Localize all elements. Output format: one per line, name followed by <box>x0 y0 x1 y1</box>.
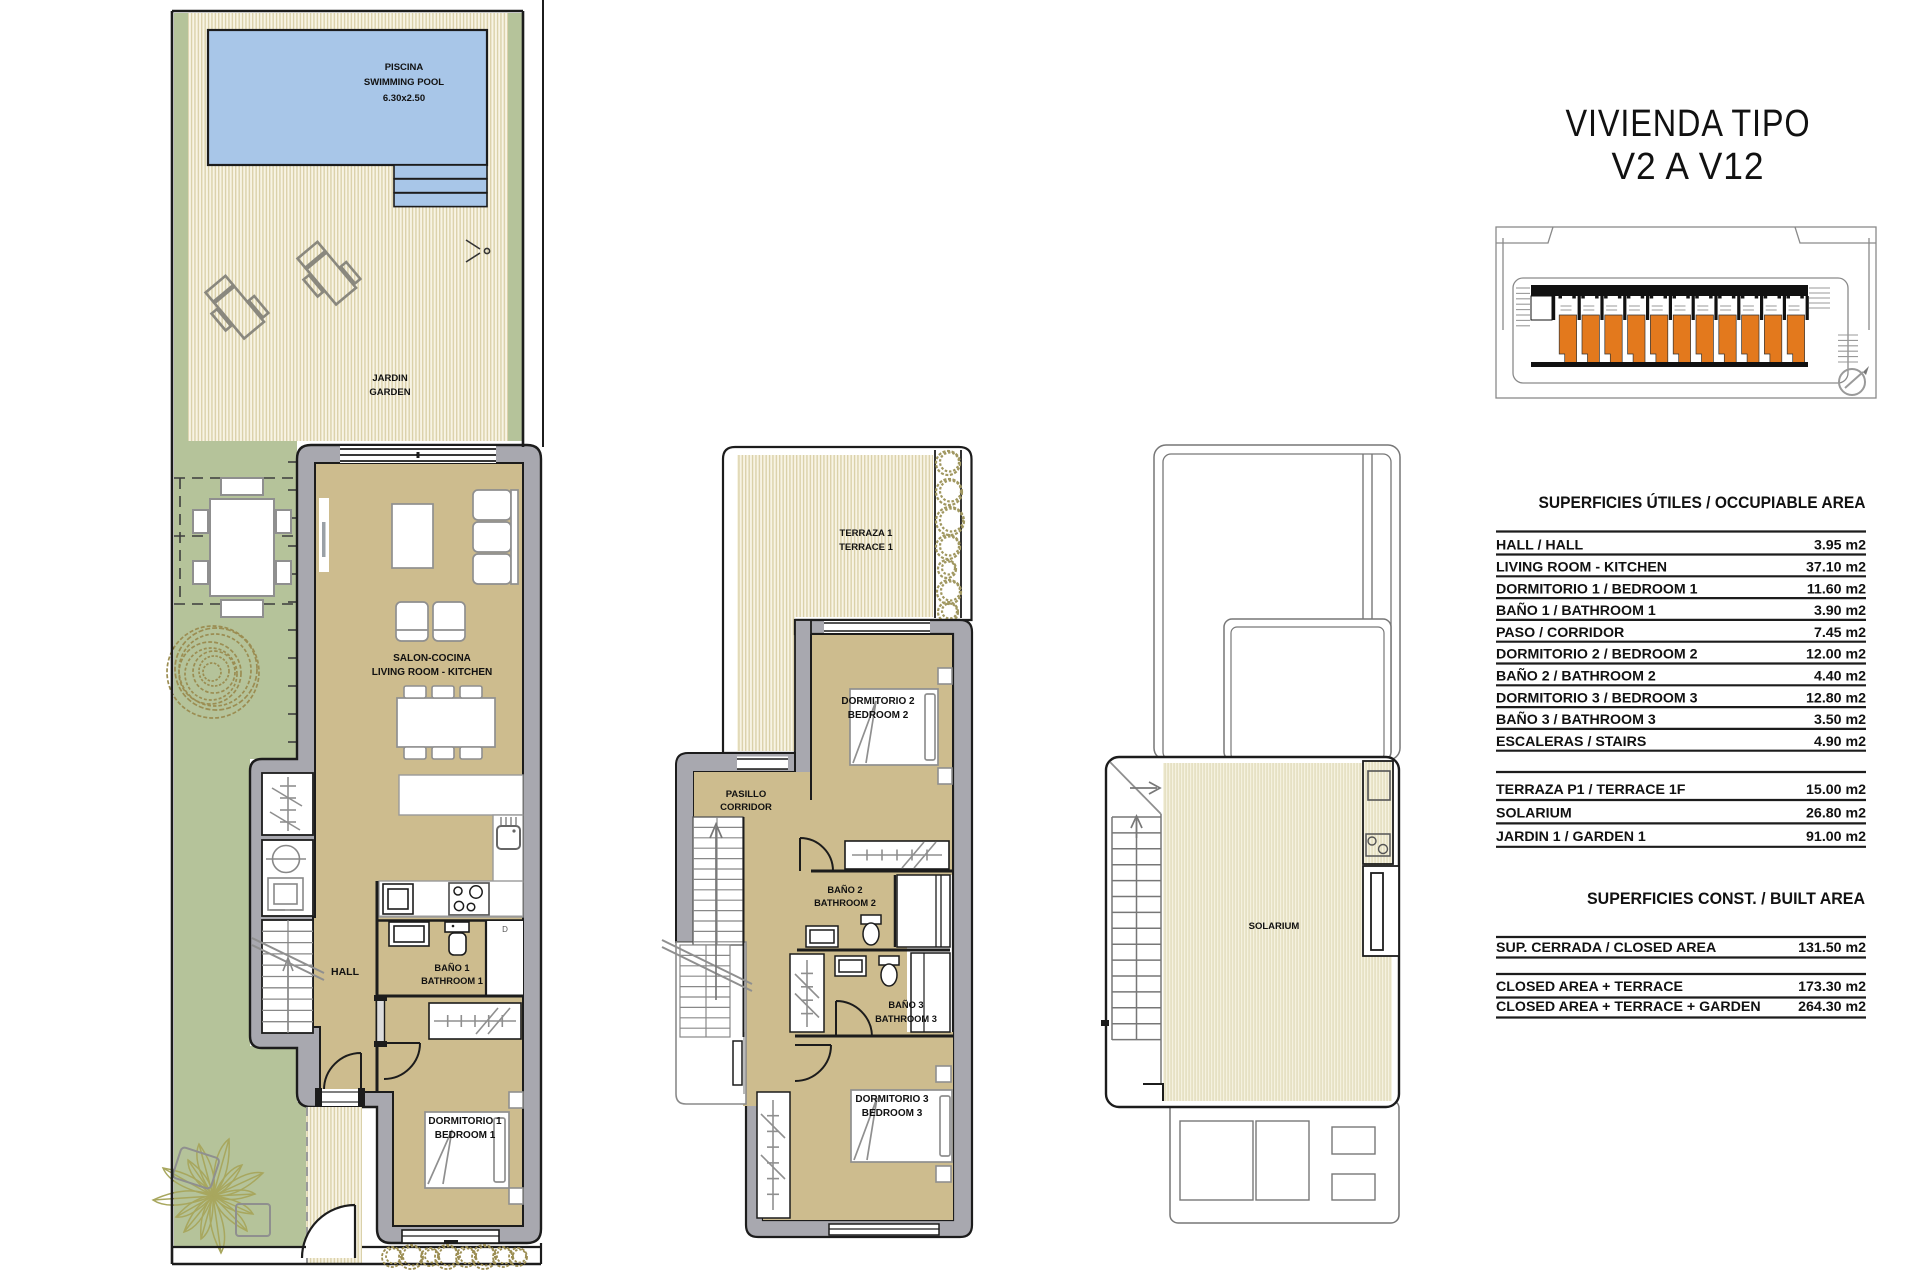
svg-text:12.80 m2: 12.80 m2 <box>1806 690 1866 706</box>
svg-text:BAÑO 2 / BATHROOM 2: BAÑO 2 / BATHROOM 2 <box>1496 667 1656 685</box>
svg-text:37.10 m2: 37.10 m2 <box>1806 560 1866 576</box>
svg-text:DORMITORIO 2: DORMITORIO 2 <box>841 696 915 707</box>
svg-text:BEDROOM 2: BEDROOM 2 <box>848 710 909 721</box>
svg-text:DORMITORIO 2 / BEDROOM 2: DORMITORIO 2 / BEDROOM 2 <box>1496 647 1698 663</box>
svg-text:SOLARIUM: SOLARIUM <box>1249 921 1300 932</box>
svg-text:SOLARIUM: SOLARIUM <box>1496 805 1572 821</box>
svg-text:V2 A V12: V2 A V12 <box>1612 146 1765 188</box>
svg-text:D: D <box>502 925 508 934</box>
svg-text:3.95 m2: 3.95 m2 <box>1814 538 1866 554</box>
svg-text:SUPERFICIES ÚTILES / OCCUPIABL: SUPERFICIES ÚTILES / OCCUPIABLE AREA <box>1539 493 1866 512</box>
svg-text:PASO / CORRIDOR: PASO / CORRIDOR <box>1496 625 1624 641</box>
svg-text:12.00 m2: 12.00 m2 <box>1806 647 1866 663</box>
svg-text:SUP. CERRADA / CLOSED AREA: SUP. CERRADA / CLOSED AREA <box>1496 940 1716 956</box>
svg-text:BATHROOM 3: BATHROOM 3 <box>875 1014 937 1024</box>
svg-text:3.50 m2: 3.50 m2 <box>1814 712 1866 728</box>
svg-text:HALL: HALL <box>331 966 360 978</box>
svg-text:DORMITORIO 3: DORMITORIO 3 <box>855 1094 929 1105</box>
svg-text:264.30 m2: 264.30 m2 <box>1798 999 1866 1015</box>
svg-text:TERRAZA P1 / TERRACE 1F: TERRAZA P1 / TERRACE 1F <box>1496 782 1686 798</box>
svg-text:PASILLO: PASILLO <box>726 789 766 800</box>
svg-text:BAÑO 3 / BATHROOM 3: BAÑO 3 / BATHROOM 3 <box>1496 710 1656 728</box>
svg-text:SALON-COCINA: SALON-COCINA <box>393 653 471 664</box>
svg-text:BEDROOM 3: BEDROOM 3 <box>862 1108 923 1119</box>
svg-text:JARDIN 1 / GARDEN 1: JARDIN 1 / GARDEN 1 <box>1496 829 1646 845</box>
svg-text:GARDEN: GARDEN <box>369 387 410 398</box>
svg-text:3.90 m2: 3.90 m2 <box>1814 603 1866 619</box>
svg-text:15.00 m2: 15.00 m2 <box>1806 782 1866 798</box>
svg-text:TERRACE 1: TERRACE 1 <box>839 542 894 553</box>
svg-text:SWIMMING POOL: SWIMMING POOL <box>364 77 444 88</box>
svg-text:91.00 m2: 91.00 m2 <box>1806 829 1866 845</box>
svg-text:CORRIDOR: CORRIDOR <box>720 802 772 813</box>
svg-text:4.90 m2: 4.90 m2 <box>1814 734 1866 750</box>
svg-text:DORMITORIO 1: DORMITORIO 1 <box>428 1116 502 1127</box>
svg-text:CLOSED AREA + TERRACE: CLOSED AREA + TERRACE <box>1496 979 1683 995</box>
svg-text:BATHROOM 1: BATHROOM 1 <box>421 976 483 986</box>
svg-text:BATHROOM 2: BATHROOM 2 <box>814 898 876 908</box>
svg-text:BAÑO 1: BAÑO 1 <box>434 963 469 973</box>
svg-text:SUPERFICIES CONST. / BUILT AR: SUPERFICIES CONST. / BUILT AREA <box>1587 890 1865 908</box>
svg-text:JARDIN: JARDIN <box>372 373 408 384</box>
svg-text:6.30x2.50: 6.30x2.50 <box>383 93 425 104</box>
svg-text:LIVING ROOM - KITCHEN: LIVING ROOM - KITCHEN <box>1496 560 1667 576</box>
svg-text:ESCALERAS / STAIRS: ESCALERAS / STAIRS <box>1496 734 1646 750</box>
svg-text:7.45 m2: 7.45 m2 <box>1814 625 1866 641</box>
svg-text:PISCINA: PISCINA <box>385 62 424 73</box>
svg-text:BEDROOM 1: BEDROOM 1 <box>435 1130 496 1141</box>
svg-text:CLOSED AREA + TERRACE + GARDEN: CLOSED AREA + TERRACE + GARDEN <box>1496 999 1761 1015</box>
svg-text:26.80 m2: 26.80 m2 <box>1806 805 1866 821</box>
svg-text:TERRAZA 1: TERRAZA 1 <box>840 528 894 539</box>
svg-text:DORMITORIO 1 / BEDROOM 1: DORMITORIO 1 / BEDROOM 1 <box>1496 581 1698 597</box>
svg-text:LIVING ROOM - KITCHEN: LIVING ROOM - KITCHEN <box>372 667 493 678</box>
svg-text:BAÑO 2: BAÑO 2 <box>827 885 862 895</box>
svg-text:131.50 m2: 131.50 m2 <box>1798 940 1866 956</box>
svg-text:173.30 m2: 173.30 m2 <box>1798 979 1866 995</box>
svg-text:VIVIENDA TIPO: VIVIENDA TIPO <box>1566 103 1811 145</box>
svg-text:BAÑO 1 / BATHROOM 1: BAÑO 1 / BATHROOM 1 <box>1496 601 1656 619</box>
svg-text:HALL / HALL: HALL / HALL <box>1496 538 1584 554</box>
svg-text:4.40 m2: 4.40 m2 <box>1814 669 1866 685</box>
svg-text:11.60 m2: 11.60 m2 <box>1807 581 1866 597</box>
svg-text:BAÑO 3: BAÑO 3 <box>888 1000 923 1010</box>
svg-text:DORMITORIO 3 / BEDROOM 3: DORMITORIO 3 / BEDROOM 3 <box>1496 690 1698 706</box>
